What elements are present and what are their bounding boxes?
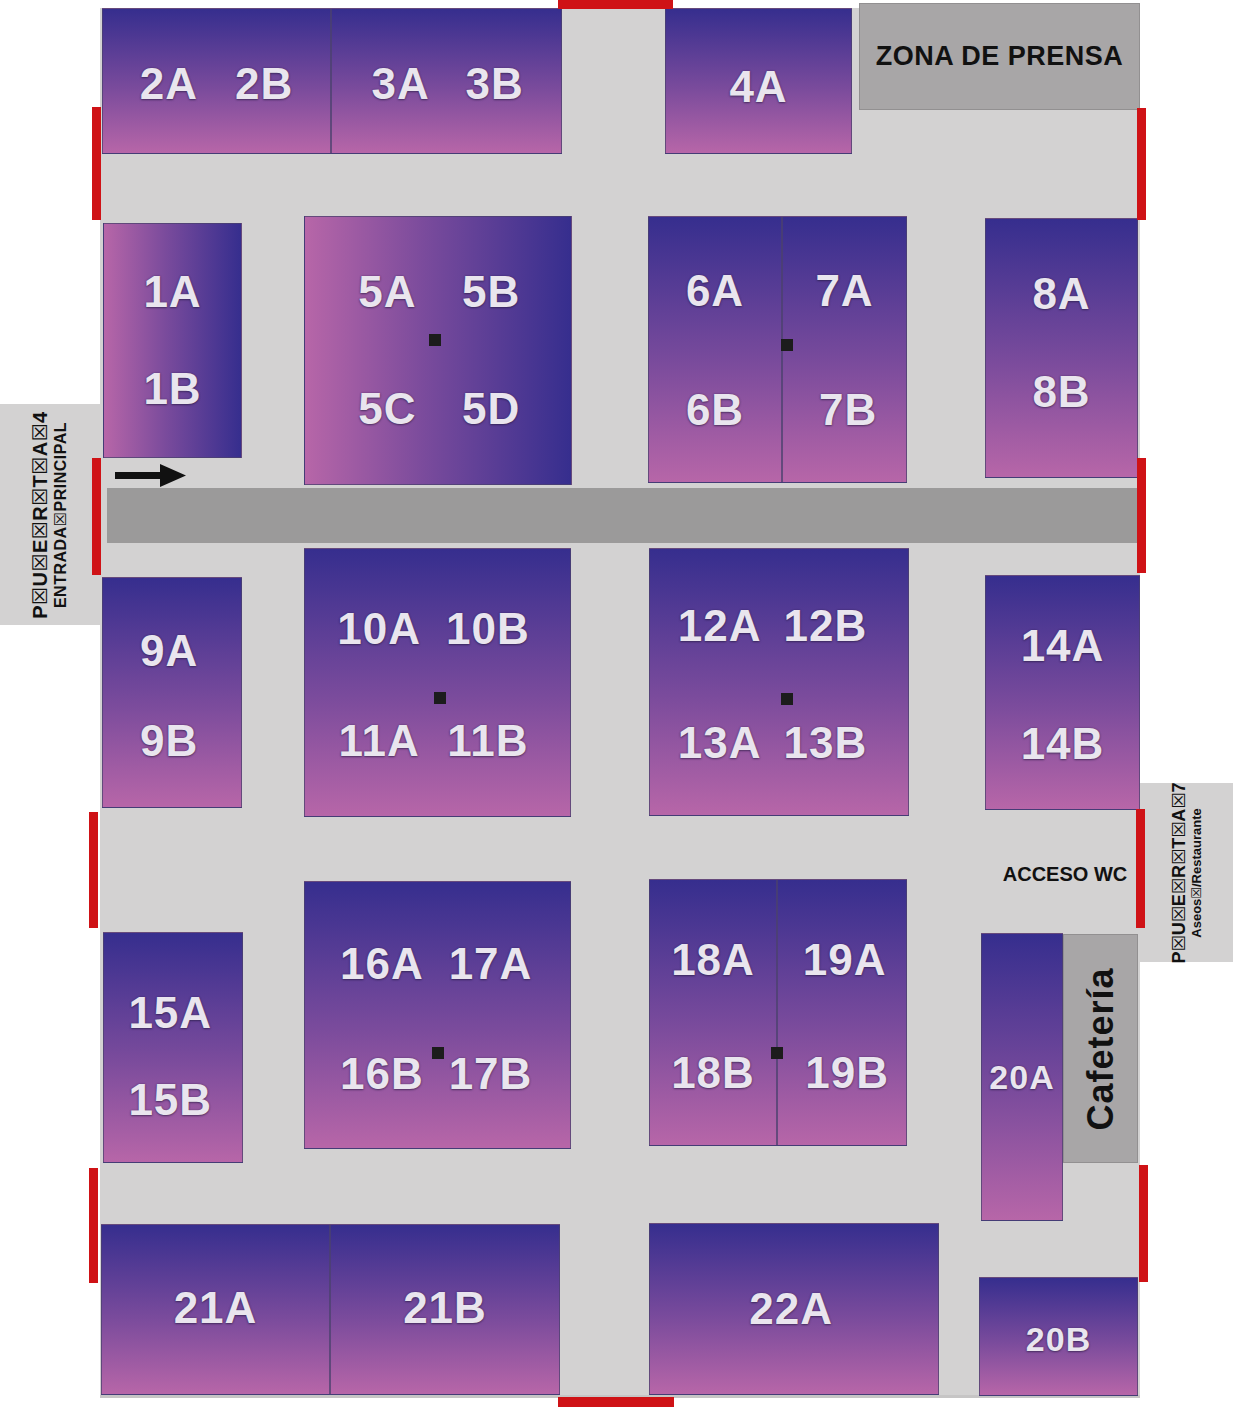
stand-label-10A: 10A (337, 604, 421, 654)
pillar-marker (781, 693, 793, 705)
stand-label-8B: 8B (1032, 367, 1090, 417)
acceso-wc-label: ACCESO WC (1004, 862, 1126, 886)
emergency-door-marker (1136, 809, 1145, 928)
stand-label-4A: 4A (729, 62, 787, 112)
stand-label-14B: 14B (1021, 719, 1105, 769)
stand-label-21A: 21A (174, 1283, 258, 1333)
stand-label-8A: 8A (1032, 269, 1090, 319)
stand-label-5B: 5B (462, 267, 520, 317)
stand-label-20A: 20A (989, 1058, 1054, 1097)
stand-block-6: 6A6B (648, 216, 782, 483)
stand-label-11B: 11B (447, 716, 528, 766)
stand-label-14A: 14A (1021, 621, 1105, 671)
stand-label-19A: 19A (803, 935, 887, 985)
main-aisle (107, 488, 1140, 543)
stand-label-3A: 3A (372, 59, 430, 109)
stand-block-7: 7A7B (782, 216, 907, 483)
stand-block-19: 19A19B (777, 879, 907, 1146)
stand-block-20B: 20B (979, 1277, 1138, 1396)
stand-label-18B: 18B (671, 1048, 755, 1098)
stand-label-17A: 17A (449, 939, 533, 989)
emergency-door-marker (1137, 458, 1146, 573)
stand-label-6A: 6A (686, 266, 744, 316)
stand-block-20A: 20A (981, 933, 1063, 1221)
stand-block-5: 5A5B5C5D (304, 216, 572, 485)
stand-label-19B: 19B (805, 1048, 889, 1098)
stand-block-21A: 21A (101, 1224, 330, 1395)
stand-block-15: 15A15B (103, 932, 243, 1163)
stand-label-20B: 20B (1026, 1319, 1091, 1358)
stand-block-22: 22A (649, 1223, 939, 1395)
entrance-arrow-icon (115, 463, 187, 488)
press-zone-label: ZONA DE PRENSA (876, 41, 1124, 72)
stand-block-10-11: 10A10B11A11B (304, 548, 571, 817)
stand-label-5C: 5C (358, 384, 416, 434)
emergency-door-marker (89, 812, 98, 928)
stand-label-5D: 5D (462, 384, 520, 434)
stand-block-18: 18A18B (649, 879, 777, 1146)
emergency-door-marker (558, 1397, 674, 1407)
emergency-door-marker (89, 1168, 98, 1283)
pillar-marker (432, 1047, 444, 1059)
stand-label-16B: 16B (340, 1049, 424, 1099)
stand-label-9B: 9B (140, 716, 198, 766)
stand-block-1: 1A1B (103, 223, 242, 458)
stand-block-8: 8A8B (985, 218, 1138, 478)
stand-label-5A: 5A (358, 267, 416, 317)
exhibition-floor-plan: P☒U☒E☒R☒T☒A☒4 ENTRADA☒PRINCIPAL P☒U☒E☒R☒… (0, 0, 1234, 1407)
entrance-lobby-puerta-4: P☒U☒E☒R☒T☒A☒4 ENTRADA☒PRINCIPAL (0, 404, 100, 625)
puerta-7-subtitle: Aseos☒/Restaurante (1189, 782, 1204, 963)
stand-label-6B: 6B (686, 385, 744, 435)
puerta-4-subtitle: ENTRADA☒PRINCIPAL (52, 411, 70, 618)
stand-block-9: 9A9B (102, 577, 242, 808)
stand-label-18A: 18A (671, 935, 755, 985)
stand-block-3: 3A3B (331, 8, 562, 154)
pillar-marker (771, 1047, 783, 1059)
stand-block-16-17: 16A17A16B17B (304, 881, 571, 1149)
stand-label-15B: 15B (128, 1075, 212, 1125)
press-zone-box: ZONA DE PRENSA (859, 3, 1140, 110)
pillar-marker (434, 692, 446, 704)
stand-block-4: 4A (665, 8, 852, 154)
stand-block-21B: 21B (330, 1224, 560, 1395)
puerta-4-label: P☒U☒E☒R☒T☒A☒4 ENTRADA☒PRINCIPAL (29, 411, 70, 618)
stand-label-16A: 16A (340, 939, 424, 989)
puerta-7-title: P☒U☒E☒R☒T☒A☒7 (1169, 782, 1190, 963)
stand-label-12B: 12B (784, 601, 868, 651)
stand-label-13B: 13B (784, 718, 868, 768)
emergency-door-marker (92, 107, 101, 220)
emergency-door-marker (92, 458, 101, 575)
stand-label-13A: 13A (678, 718, 762, 768)
pillar-marker (429, 334, 441, 346)
stand-label-1B: 1B (143, 364, 201, 414)
stand-label-2B: 2B (235, 59, 293, 109)
stand-label-9A: 9A (140, 626, 198, 676)
puerta-4-title: P☒U☒E☒R☒T☒A☒4 (29, 411, 52, 618)
cafeteria-label: Cafetería (1080, 967, 1122, 1130)
stand-label-7B: 7B (819, 385, 877, 435)
stand-label-7A: 7A (815, 266, 873, 316)
stand-label-15A: 15A (128, 988, 212, 1038)
emergency-door-marker (1137, 108, 1146, 220)
lobby-puerta-7: P☒U☒E☒R☒T☒A☒7 Aseos☒/Restaurante (1140, 783, 1233, 962)
stand-block-12-13: 12A12B13A13B (649, 548, 909, 816)
stand-label-10B: 10B (446, 604, 530, 654)
stand-block-14: 14A14B (985, 575, 1140, 810)
cafeteria-box: Cafetería (1063, 934, 1138, 1163)
stand-label-21B: 21B (403, 1283, 487, 1333)
pillar-marker (781, 339, 793, 351)
emergency-door-marker (558, 0, 673, 9)
puerta-7-label: P☒U☒E☒R☒T☒A☒7 Aseos☒/Restaurante (1169, 782, 1205, 963)
stand-label-11A: 11A (339, 716, 420, 766)
stand-label-1A: 1A (143, 267, 201, 317)
stand-label-3B: 3B (465, 59, 523, 109)
stand-label-22A: 22A (749, 1284, 833, 1334)
stand-block-2: 2A2B (102, 8, 331, 154)
stand-label-17B: 17B (449, 1049, 533, 1099)
stand-label-12A: 12A (678, 601, 762, 651)
stand-label-2A: 2A (140, 59, 198, 109)
emergency-door-marker (1139, 1165, 1148, 1282)
